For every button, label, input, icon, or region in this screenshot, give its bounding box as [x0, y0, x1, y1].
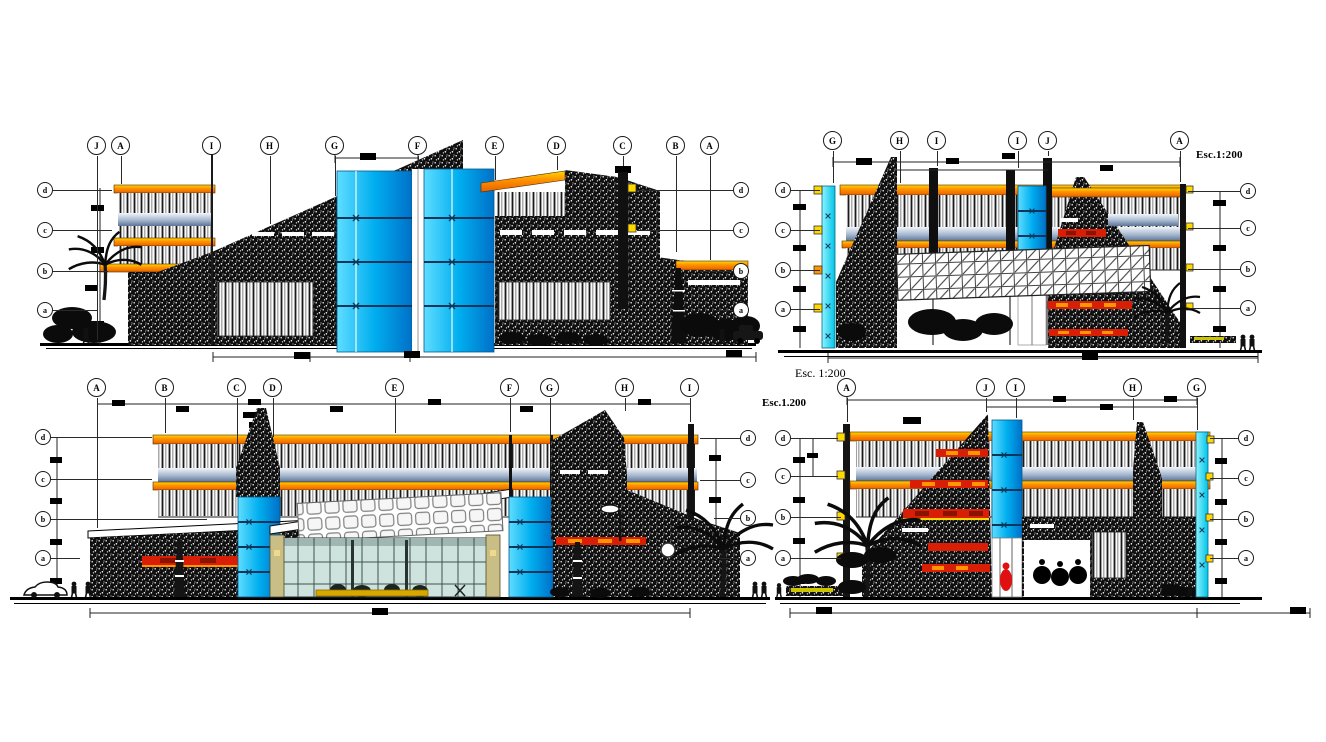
elevations-artwork — [0, 0, 1326, 742]
cyan-glass-strip — [814, 186, 835, 348]
glass-tower-right — [424, 169, 494, 352]
stone-wedge-cd — [236, 408, 280, 497]
elevation-bottom-left-drawing — [10, 399, 773, 618]
right-wing — [628, 253, 763, 345]
trellis-canopy — [896, 245, 1150, 300]
entrance — [270, 489, 512, 597]
glass-tower — [992, 420, 1022, 597]
drawing-sheet: Esc.1:200 Esc. 1:200 Esc.1.200 JAIHGFEDC… — [0, 0, 1326, 742]
elevation-bottom-right-drawing — [775, 395, 1310, 618]
lower-wall — [1022, 517, 1197, 597]
glass-tower-left — [337, 171, 412, 352]
glass-tower-right — [509, 497, 553, 597]
left-garden — [777, 574, 843, 597]
elevation-top-right-drawing — [778, 153, 1262, 363]
grid-column-a — [1180, 184, 1193, 348]
street-car — [24, 582, 67, 598]
elevation-top-left-drawing — [40, 140, 763, 362]
